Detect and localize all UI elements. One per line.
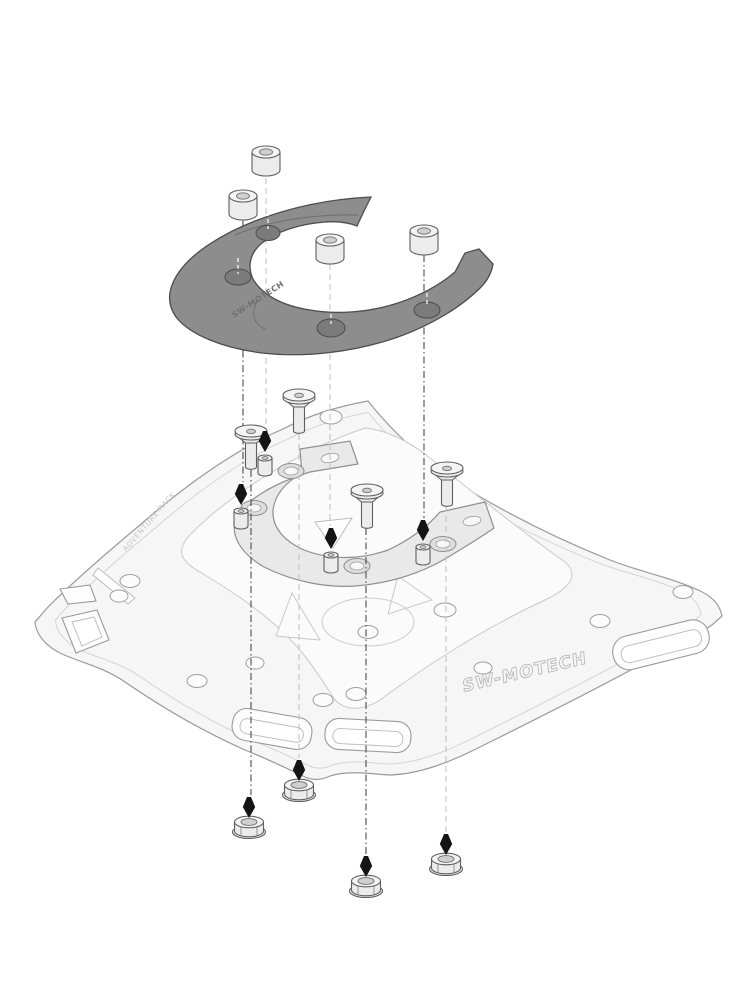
bottom-right-slot-group [324,718,412,753]
flange-lock-nut-3 [350,875,383,897]
plate-hole [120,575,140,588]
plate-hole [246,657,264,669]
plate-hole [673,586,693,599]
plate-hole [320,410,342,424]
plate-hole [590,615,610,628]
threaded-stud-4 [416,544,430,565]
spacer-sleeve-3 [316,234,344,264]
flange-lock-nut-2 [283,779,316,801]
plate-center-hole [358,626,378,639]
spacer-sleeve-2 [229,190,257,220]
flange-lock-nut-4 [430,853,463,875]
adventure-rack-plate: SW-MOTECH ADVENTURE-RACK [35,401,722,779]
exploded-diagram-canvas: SW-MOTECH ADVENTURE-RACK SW-MOTECH [0,0,750,1000]
insertion-arrow-icon [243,797,255,818]
tank-ring: SW-MOTECH [170,197,493,355]
spacer-sleeve-4 [410,225,438,255]
tank-ring-hole [414,302,440,318]
threaded-stud-1 [258,455,272,476]
bottom-right-slot-inner [333,728,404,747]
plate-hole [434,603,456,617]
threaded-stud-3 [324,552,338,573]
plate-hole [313,694,333,707]
plate-hole [187,675,207,688]
plate-hole [110,590,128,602]
spacer-sleeve-1 [252,146,280,176]
plate-hole [346,688,366,701]
diagram-stage: SW-MOTECH ADVENTURE-RACK SW-MOTECH [0,0,750,1000]
flange-lock-nut-1 [233,816,266,838]
tank-ring-hole [225,269,251,285]
insertion-arrow-icon [360,856,372,877]
threaded-stud-2 [234,508,248,529]
insertion-arrow-icon [440,834,452,855]
